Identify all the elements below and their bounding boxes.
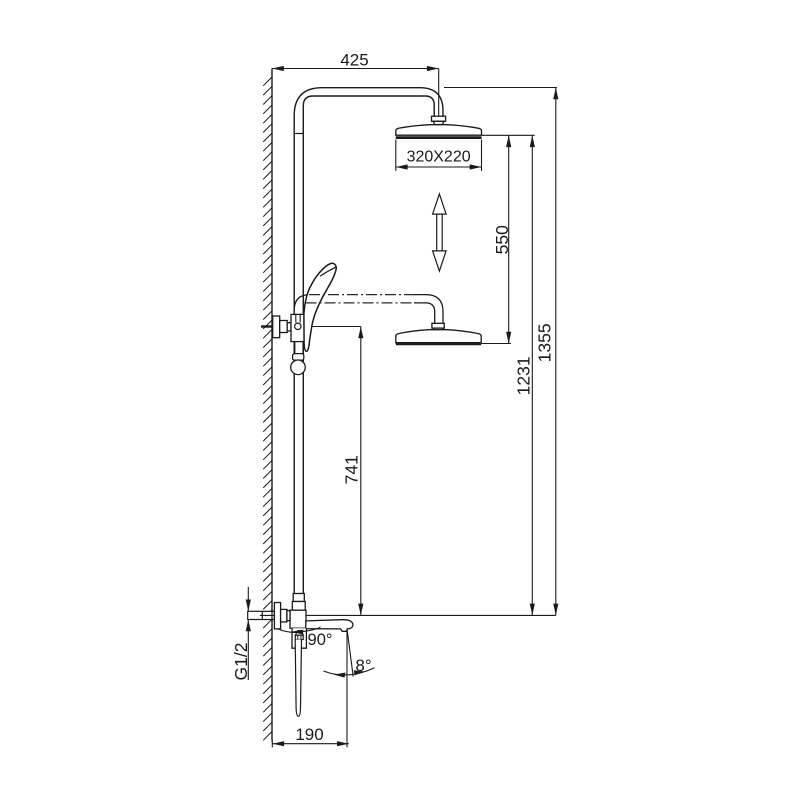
svg-text:1231: 1231 <box>513 356 533 395</box>
svg-text:320X220: 320X220 <box>407 148 471 165</box>
svg-text:425: 425 <box>340 51 368 70</box>
svg-text:G1/2: G1/2 <box>231 643 251 681</box>
svg-text:1355: 1355 <box>534 323 554 362</box>
svg-text:741: 741 <box>341 455 361 484</box>
svg-text:550: 550 <box>492 225 512 254</box>
svg-text:90°: 90° <box>308 631 333 649</box>
svg-text:8°: 8° <box>355 656 371 675</box>
svg-text:190: 190 <box>295 725 323 744</box>
